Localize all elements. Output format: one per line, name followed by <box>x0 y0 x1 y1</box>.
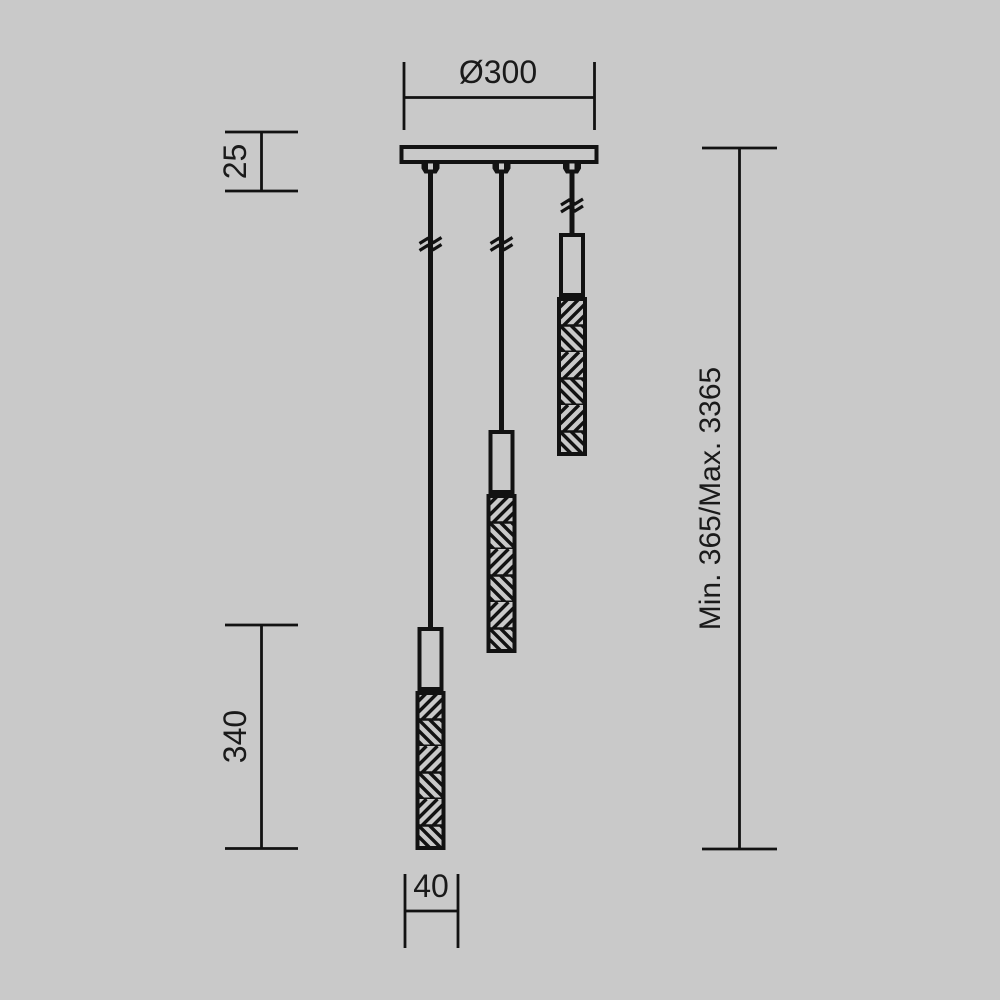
cord-grip-middle <box>493 164 511 174</box>
pendant-right <box>559 235 585 454</box>
cord-grip-left <box>422 164 440 174</box>
pendant-left <box>418 629 444 848</box>
label-canopy-height: 25 <box>217 144 253 180</box>
label-pendant-length: 340 <box>217 710 253 763</box>
technical-drawing: Ø300 25 340 Min. 365/Max. 3365 40 <box>0 0 1000 1000</box>
drawing-canvas: Ø300 25 340 Min. 365/Max. 3365 40 <box>0 0 1000 1000</box>
label-canopy-diameter: Ø300 <box>459 54 537 90</box>
label-pendant-diameter: 40 <box>413 868 449 904</box>
label-suspension-height: Min. 365/Max. 3365 <box>694 367 727 630</box>
fixture <box>402 147 597 848</box>
pendant-middle <box>489 432 515 651</box>
ceiling-canopy <box>402 147 597 162</box>
dimension-labels: Ø300 25 340 Min. 365/Max. 3365 40 <box>217 54 727 904</box>
cord-grip-right <box>563 164 581 174</box>
